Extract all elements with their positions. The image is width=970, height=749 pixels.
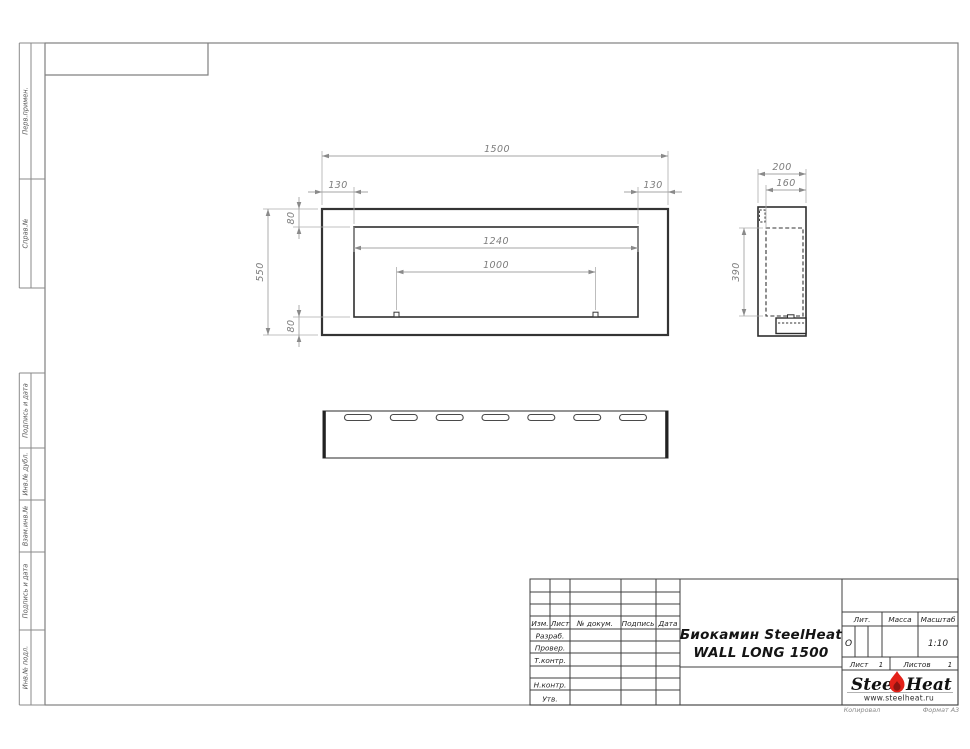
doc-title-line1: Биокамин SteelHeat	[680, 627, 843, 643]
dim-130-right: 130	[643, 180, 662, 191]
side-outer-contour	[758, 207, 806, 336]
listov-label: Листов	[902, 660, 930, 669]
dim-80-top: 80	[286, 212, 297, 225]
dim-1000: 1000	[483, 260, 509, 271]
top-left-stamp-box	[45, 43, 208, 75]
dim-200: 200	[772, 162, 791, 173]
vent-slot	[574, 415, 601, 421]
doc-title-line2: WALL LONG 1500	[693, 645, 828, 661]
row-prover: Провер.	[535, 644, 565, 653]
burner-mount-right	[593, 312, 598, 317]
row-tkontr: Т.контр.	[534, 656, 566, 665]
vent-slot	[436, 415, 463, 421]
bottom-view	[323, 411, 668, 458]
dim-80-bottom: 80	[286, 320, 297, 333]
side-hidden-bracket	[760, 210, 766, 222]
drawing-canvas: Перв.примен. Справ.№ Подпись и дата Инв.…	[0, 0, 970, 749]
row-utv: Утв.	[542, 695, 557, 704]
vent-slot	[390, 415, 417, 421]
logo-heat-text: Heat	[905, 675, 952, 695]
col-podpis: Подпись	[622, 619, 655, 628]
side-burner-box	[776, 318, 806, 334]
vent-slot	[620, 415, 647, 421]
col-izm: Изм.	[531, 619, 548, 628]
side-burner-lip	[788, 315, 795, 318]
vent-slot	[345, 415, 372, 421]
col-data: Дата	[658, 619, 678, 628]
vent-slots	[345, 415, 647, 421]
margin-label-inv-podl: Инв.№ подл.	[22, 646, 30, 689]
margin-label-perv-primen: Перв.примен.	[22, 87, 30, 134]
lit-label: Лит.	[853, 615, 871, 624]
dim-1500: 1500	[484, 144, 510, 155]
list-label: Лист	[849, 660, 869, 669]
dim-160: 160	[776, 178, 795, 189]
lit-value: О	[845, 639, 852, 649]
margin-column: Перв.примен. Справ.№ Подпись и дата Инв.…	[19, 43, 45, 705]
margin-label-sprav-no: Справ.№	[22, 218, 30, 248]
sheet-footer: Копировал Формат А3	[844, 706, 959, 714]
vent-slot	[482, 415, 509, 421]
side-hidden-cavity	[766, 228, 803, 316]
vent-slot	[528, 415, 555, 421]
footer-copied: Копировал	[844, 706, 881, 714]
sheet-frame	[45, 43, 958, 705]
frame-border	[45, 43, 958, 705]
burner-mount-left	[394, 312, 399, 317]
side-view-dimensions: 200 160 390	[731, 162, 806, 316]
dim-550: 550	[255, 262, 266, 281]
margin-label-podpis-data-1: Подпись и дата	[22, 383, 30, 438]
drawing-sheet: Перв.примен. Справ.№ Подпись и дата Инв.…	[0, 0, 970, 749]
row-razrab: Разраб.	[536, 632, 565, 641]
dim-390: 390	[731, 262, 742, 281]
margin-label-vzam-inv: Взам.инв.№	[22, 506, 30, 547]
massa-label: Масса	[888, 615, 911, 624]
masshtab-value: 1:10	[928, 639, 948, 649]
margin-label-podpis-data-2: Подпись и дата	[22, 564, 30, 619]
listov-value: 1	[948, 660, 953, 669]
row-nkontr: Н.контр.	[534, 681, 567, 690]
footer-format: Формат А3	[923, 706, 959, 714]
side-view	[758, 207, 806, 336]
logo-url: www.steelheat.ru	[864, 694, 934, 703]
list-value: 1	[879, 660, 884, 669]
col-ndocum: № докум.	[576, 619, 613, 628]
steelheat-logo: Steel Heat www.steelheat.ru	[847, 671, 953, 703]
col-list: Лист	[550, 619, 570, 628]
margin-label-inv-dubl: Инв.№ дубл.	[22, 452, 30, 495]
dim-130-left: 130	[328, 180, 347, 191]
masshtab-label: Масштаб	[921, 615, 956, 624]
dim-1240: 1240	[483, 236, 509, 247]
